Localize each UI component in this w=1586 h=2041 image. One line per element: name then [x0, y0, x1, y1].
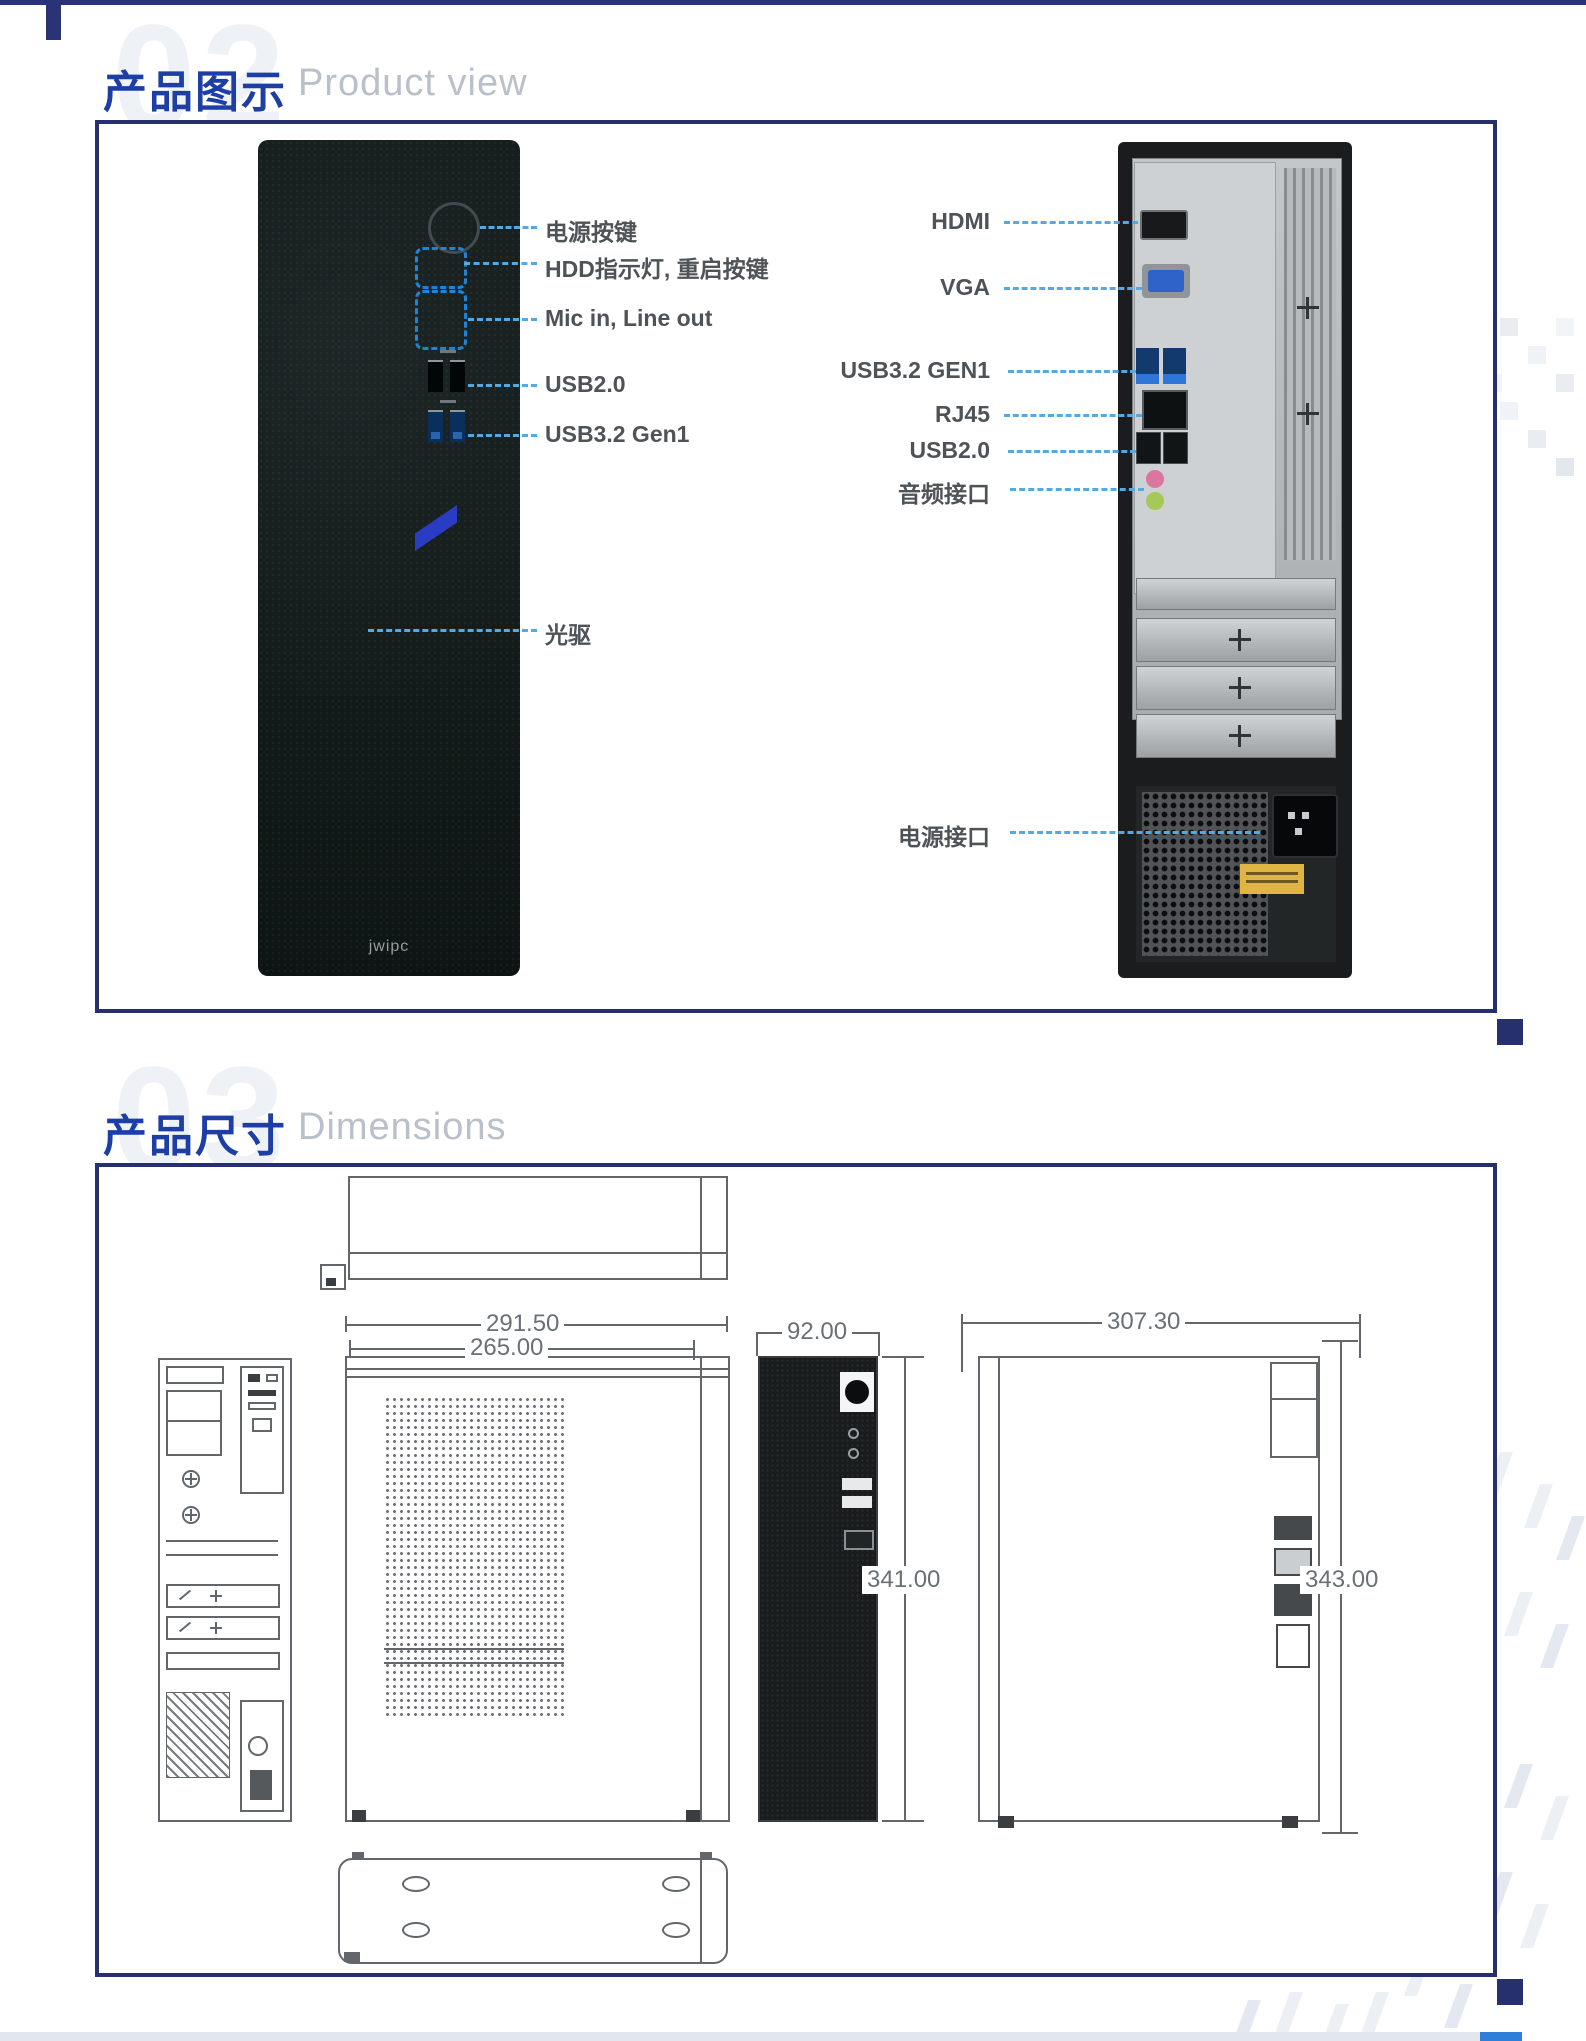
front-usb3-port-1: [428, 410, 443, 442]
socket-pin: [1302, 812, 1309, 819]
mosaic-stripe: [1556, 1516, 1585, 1560]
hdmi-port: [1140, 210, 1188, 240]
mosaic-stripe: [1360, 1992, 1389, 2036]
rear-view-connector: [1276, 1624, 1310, 1668]
usb2-glyph-mark: [440, 350, 456, 353]
leader-hdd-led: [464, 262, 537, 265]
leader-mic-lineout: [468, 318, 537, 321]
side-view-silhouette: [758, 1356, 878, 1822]
left-view-detail: [250, 1770, 272, 1800]
screw-cross-icon: [190, 1473, 192, 1485]
section2-subtitle: Dimensions: [298, 1106, 507, 1149]
expansion-slot-cover: [1136, 578, 1336, 610]
left-view-detail: [248, 1374, 260, 1382]
leader-rj45: [1004, 414, 1142, 417]
rear-view-foot: [998, 1816, 1014, 1828]
bottom-view-slot: [402, 1922, 430, 1938]
mosaic-stripe: [1274, 1992, 1303, 2036]
front-usb2-port-1: [428, 360, 443, 392]
label-audio: 音频接口: [700, 475, 990, 509]
drawing-line: [350, 1252, 726, 1254]
left-view-detail: [252, 1418, 272, 1432]
dim-tick: [756, 1332, 758, 1356]
dim-front-height: 341.00: [862, 1566, 945, 1594]
front-mesh-pattern: [384, 1396, 564, 1718]
label-rear-usb3: USB3.2 GEN1: [700, 357, 990, 384]
leader-front-usb3: [468, 434, 537, 437]
label-mic-lineout: Mic in, Line out: [545, 305, 712, 332]
dim-tick: [345, 1316, 347, 1332]
rear-view-foot: [1282, 1816, 1298, 1828]
usb3-glyph-mark: [440, 400, 456, 403]
dim-rear-height: 343.00: [1300, 1566, 1383, 1594]
dim-side-depth: 92.00: [782, 1318, 852, 1346]
dim-front-width-inner: 265.00: [465, 1334, 548, 1362]
dim-tick: [349, 1340, 351, 1356]
label-vga: VGA: [700, 274, 990, 301]
screw-cross-icon: [1238, 629, 1241, 651]
mosaic-stripe: [1504, 1764, 1533, 1808]
mosaic-square: [1528, 430, 1546, 448]
screw-cross-icon: [1306, 403, 1309, 425]
side-view-jack: [848, 1448, 859, 1459]
mosaic-square: [1556, 318, 1574, 336]
screw-cross-icon: [1306, 297, 1309, 319]
drawing-line: [1272, 1398, 1316, 1400]
section1-subtitle: Product view: [298, 62, 528, 105]
mosaic-stripe: [1444, 1984, 1473, 2028]
drawing-line: [700, 1358, 702, 1820]
bottom-view-slot: [662, 1876, 690, 1892]
left-view-detail: [166, 1366, 224, 1384]
bottom-page-band-accent: [1480, 2032, 1522, 2041]
rear-usb3-port-2: [1163, 348, 1186, 384]
leader-power-button: [480, 226, 537, 229]
drawing-line: [384, 1648, 564, 1650]
drawing-line: [166, 1420, 222, 1422]
power-socket: [1272, 794, 1338, 858]
frame2-corner-square: [1497, 1979, 1523, 2005]
rear-vent-louvers: [1284, 168, 1336, 560]
sticker-text-line: [1246, 880, 1298, 883]
label-rj45: RJ45: [700, 401, 990, 428]
warning-sticker: [1240, 864, 1304, 894]
bottom-view-slot: [662, 1922, 690, 1938]
mosaic-stripe: [1524, 1484, 1553, 1528]
mosaic-stripe: [1520, 1904, 1549, 1948]
bottom-view-outline: [338, 1858, 728, 1964]
rear-view-bracket: [1270, 1362, 1318, 1458]
section1-title: 产品图示: [103, 56, 287, 120]
frame1-corner-square: [1497, 1019, 1523, 1045]
drawing-line: [166, 1540, 278, 1542]
top-view-foot: [320, 1264, 346, 1290]
audio-jacks-dashed-box: [415, 290, 467, 350]
side-view-power-button: [845, 1380, 869, 1404]
drawing-line: [700, 1860, 702, 1962]
screw-cross-icon: [190, 1509, 192, 1521]
leader-vga: [1004, 287, 1142, 290]
front-view-foot: [352, 1810, 366, 1822]
socket-pin: [1295, 828, 1302, 835]
bottom-view-tab: [700, 1852, 712, 1860]
front-usb3-port-2: [450, 410, 465, 442]
side-view-usb: [842, 1496, 872, 1508]
screw-cross-icon: [215, 1622, 217, 1634]
top-view-foot-pad: [326, 1278, 336, 1286]
left-view-screw: [248, 1736, 268, 1756]
side-view-slot: [844, 1530, 874, 1550]
label-front-usb3: USB3.2 Gen1: [545, 421, 689, 448]
side-view-usb: [842, 1478, 872, 1490]
mosaic-stripe: [1540, 1796, 1569, 1840]
front-tower-texture: [258, 140, 520, 976]
leader-rear-usb3: [1008, 370, 1136, 373]
drawing-line: [166, 1554, 278, 1556]
mosaic-stripe: [1540, 1624, 1569, 1668]
section2-title: 产品尺寸: [103, 1100, 287, 1164]
bottom-view-tab: [344, 1952, 360, 1962]
screw-cross-icon: [215, 1590, 217, 1602]
leader-power-inlet: [1010, 831, 1260, 834]
bottom-view-tab: [352, 1852, 364, 1860]
left-view-detail: [266, 1374, 278, 1382]
rear-view-connector: [1274, 1516, 1312, 1540]
brand-logo: jwipc: [258, 938, 520, 956]
label-hdmi: HDMI: [700, 208, 990, 235]
drawing-line: [384, 1662, 564, 1664]
front-view-foot: [686, 1810, 700, 1822]
mosaic-square: [1500, 318, 1518, 336]
label-rear-usb2: USB2.0: [700, 437, 990, 464]
dim-tick: [726, 1316, 728, 1332]
dim-ext-line: [882, 1820, 924, 1822]
screw-cross-icon: [1238, 725, 1241, 747]
left-view-detail: [248, 1390, 276, 1396]
rj45-port: [1142, 390, 1188, 430]
label-power-inlet: 电源接口: [700, 818, 990, 852]
drawing-line: [347, 1368, 728, 1370]
mosaic-stripe: [1504, 1592, 1533, 1636]
leader-optical-drive: [368, 629, 537, 632]
lineout-jack-icon: [1146, 492, 1164, 510]
bottom-page-band: [0, 2032, 1522, 2041]
rear-usb2-port-1: [1136, 432, 1161, 464]
dim-ext-line: [1322, 1832, 1358, 1834]
hdd-led-dashed-box: [415, 247, 467, 289]
leader-front-usb2: [468, 384, 537, 387]
top-view-outline: [348, 1176, 728, 1280]
dim-rear-width: 307.30: [1102, 1308, 1185, 1336]
leader-audio: [1010, 488, 1144, 491]
side-view-jack: [848, 1428, 859, 1439]
left-view-detail: [248, 1402, 276, 1410]
mosaic-square: [1500, 402, 1518, 420]
drawing-line: [700, 1178, 702, 1278]
socket-pin: [1288, 812, 1295, 819]
mosaic-square: [1556, 458, 1574, 476]
leader-hdmi: [1004, 221, 1138, 224]
left-view-detail: [166, 1652, 280, 1670]
drawing-line: [998, 1358, 1000, 1820]
sticker-text-line: [1246, 872, 1298, 875]
dim-tick: [878, 1332, 880, 1356]
label-front-usb2: USB2.0: [545, 371, 626, 398]
front-tower-photo: [258, 140, 520, 976]
leader-rear-usb2: [1008, 450, 1136, 453]
rear-usb2-port-2: [1163, 432, 1188, 464]
left-view-detail: [166, 1390, 222, 1456]
label-optical-drive: 光驱: [545, 616, 591, 650]
mosaic-square: [1528, 346, 1546, 364]
left-view-fan-grill: [166, 1692, 230, 1778]
bottom-view-slot: [402, 1876, 430, 1892]
rear-view-outline: [978, 1356, 1320, 1822]
dim-tick: [961, 1314, 963, 1372]
screw-cross-icon: [1238, 677, 1241, 699]
top-left-accent-bar: [46, 0, 61, 40]
mosaic-square: [1556, 374, 1574, 392]
drawing-line: [347, 1376, 728, 1378]
vga-port: [1148, 270, 1184, 292]
datasheet-page: 02 产品图示 Product view jwipc 电源按键 HDD指示灯, …: [0, 0, 1586, 2041]
dim-ext-line: [882, 1356, 924, 1358]
dim-tick: [1359, 1314, 1361, 1358]
dim-tick: [693, 1340, 695, 1360]
label-power-button: 电源按键: [545, 213, 637, 247]
rear-usb3-port-1: [1136, 348, 1159, 384]
front-usb2-port-2: [450, 360, 465, 392]
mic-jack-icon: [1146, 470, 1164, 488]
